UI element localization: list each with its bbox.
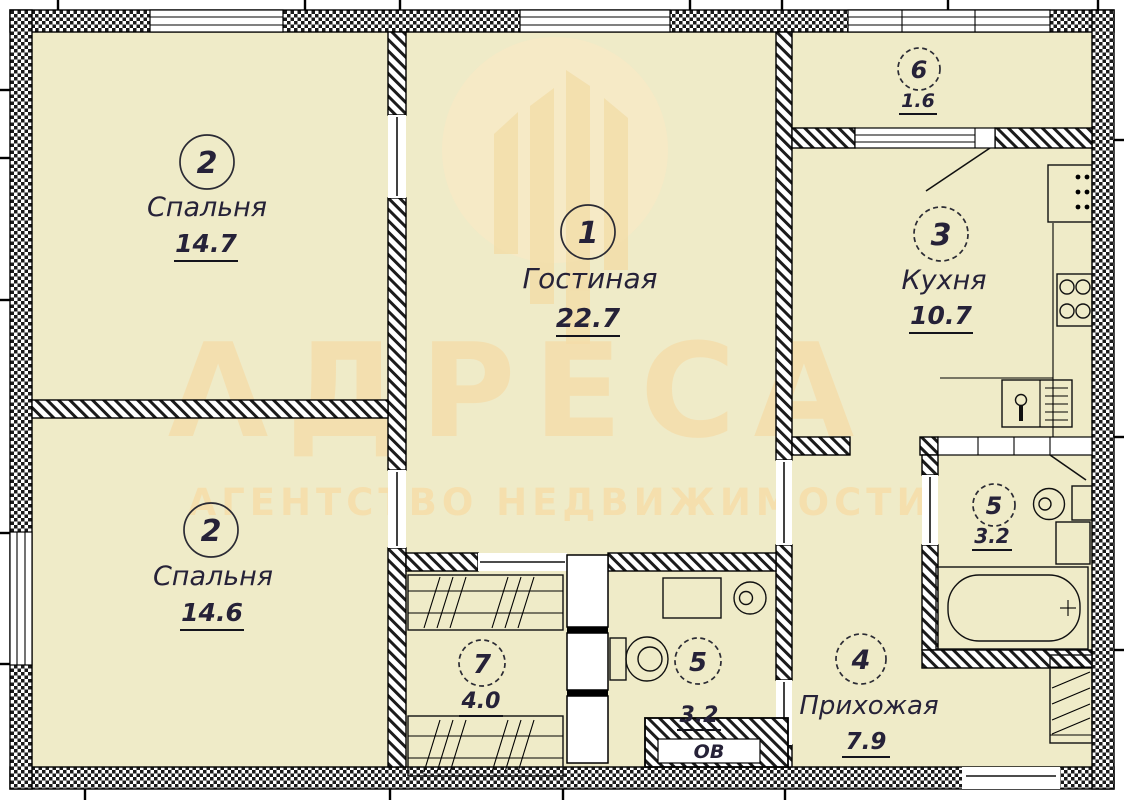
window-bedroom-bottom: [10, 532, 32, 665]
duct-label: ОВ: [694, 741, 725, 763]
floor-plan-image: АДРЕСА АГЕНТСТВО НЕДВИЖИМОСТИ: [0, 0, 1124, 800]
room-area: 10.7: [910, 301, 972, 330]
room-area: 3.2: [974, 524, 1009, 548]
room-number: 2: [201, 514, 222, 549]
room-name: Прихожая: [799, 691, 938, 721]
room-number: 5: [986, 492, 1003, 520]
door-bedroom-top: [388, 115, 406, 198]
ventilation-shafts: [567, 555, 608, 763]
room-name: Спальня: [147, 192, 267, 223]
floor-plan-svg: АДРЕСА АГЕНТСТВО НЕДВИЖИМОСТИ: [0, 0, 1124, 800]
door-bedroom-bottom: [388, 470, 406, 548]
door-bathroom-side: [922, 475, 938, 545]
room-name: Спальня: [153, 561, 273, 592]
room-area: 14.7: [175, 229, 237, 258]
room-number: 4: [851, 645, 871, 676]
room-number: 5: [689, 648, 707, 678]
room-name: Гостиная: [523, 262, 658, 295]
room-area: 3.2: [680, 703, 719, 728]
room-area: 14.6: [181, 598, 243, 627]
room-number: 3: [931, 218, 952, 253]
room-number: 6: [911, 56, 928, 84]
logo-circle: [442, 37, 668, 263]
room-area: 1.6: [901, 90, 935, 112]
window-living: [520, 10, 670, 32]
door-wardrobe: [478, 553, 567, 571]
room-area: 7.9: [846, 729, 887, 755]
room-area: 4.0: [461, 689, 501, 714]
window-bedroom-top: [150, 10, 283, 32]
room-number: 2: [197, 146, 218, 181]
wall-between-bedrooms: [32, 400, 388, 418]
window-balcony-glazing: [848, 10, 1050, 32]
wall-left: [10, 10, 32, 789]
entrance-door: [962, 767, 1060, 789]
watermark-tagline: АГЕНТСТВО НЕДВИЖИМОСТИ: [188, 481, 933, 524]
wall-right: [1092, 10, 1114, 789]
room-number: 1: [578, 216, 599, 251]
room-area: 22.7: [556, 304, 621, 334]
room-name: Кухня: [901, 265, 986, 296]
watermark-brand: АДРЕСА: [168, 315, 873, 467]
room-number: 7: [473, 650, 492, 680]
wall-bottom: [10, 767, 1114, 789]
door-living-hall: [776, 460, 792, 545]
